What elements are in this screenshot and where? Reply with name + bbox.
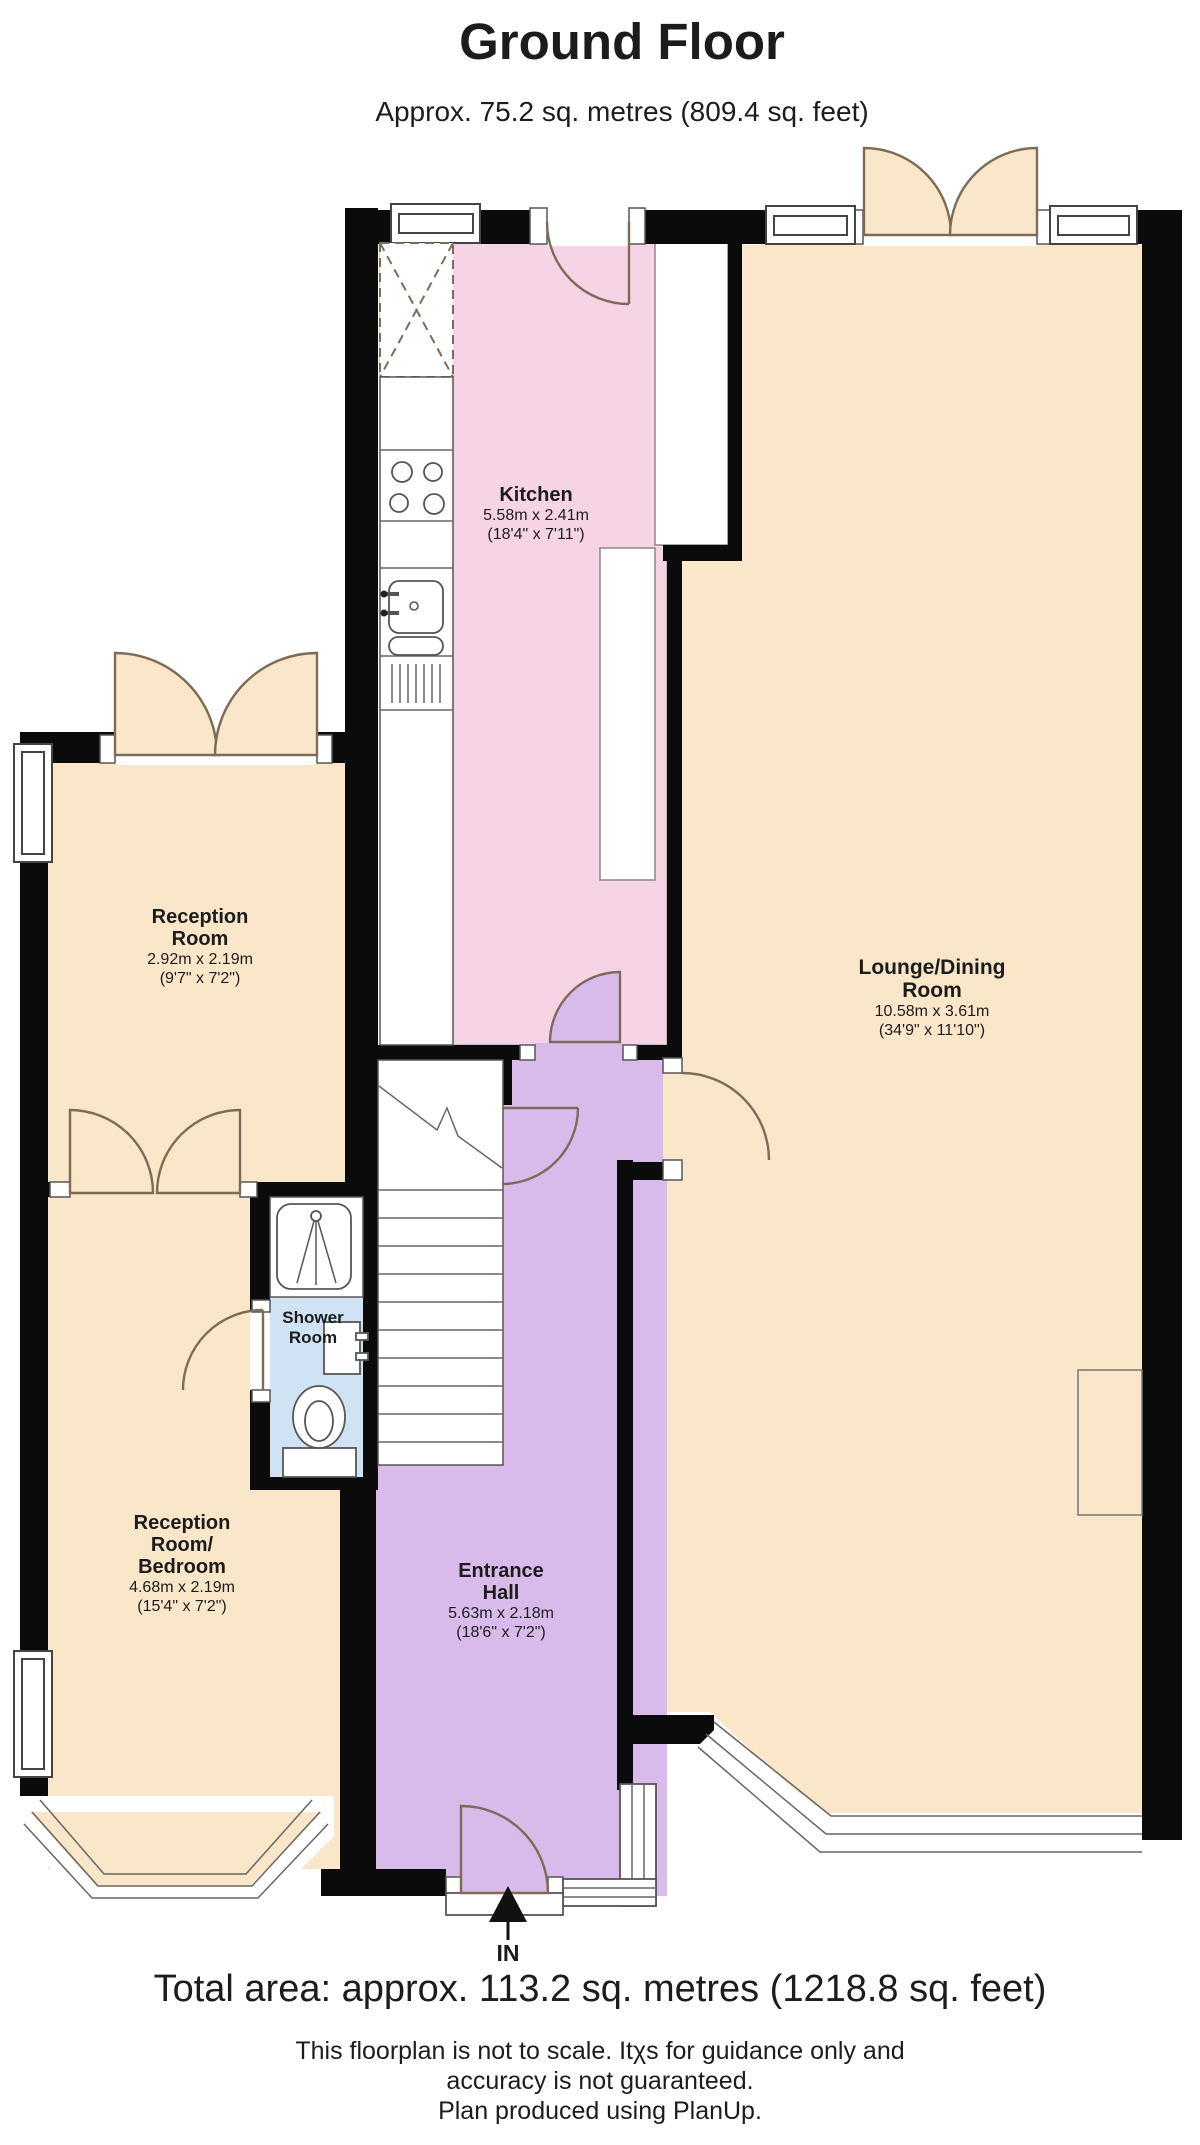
shower-room-name-line2: Room bbox=[282, 1328, 343, 1348]
wall-doubledoor-left bbox=[20, 1182, 50, 1197]
entrance-hall-name-line1: Entrance bbox=[448, 1560, 554, 1582]
entrance-hall-name-line2: Hall bbox=[448, 1582, 554, 1604]
shower-tray-icon bbox=[270, 1197, 363, 1297]
shower-room-label: Shower Room bbox=[282, 1308, 343, 1348]
chimney-breast-outline bbox=[1078, 1370, 1142, 1515]
entry-in-label: IN bbox=[497, 1940, 520, 1967]
opening-shower-door bbox=[250, 1312, 270, 1390]
reception-bedroom-name-line2: Room/ bbox=[129, 1534, 235, 1556]
kitchen-fixtures bbox=[380, 243, 453, 1045]
staircase bbox=[378, 1060, 503, 1465]
reception-name-line2: Room bbox=[147, 928, 253, 950]
wall-lounge-bay-left bbox=[633, 1715, 714, 1744]
lounge-name-line1: Lounge/Dining bbox=[859, 956, 1006, 979]
bedroom-bay-window bbox=[20, 1796, 334, 1908]
drainer bbox=[389, 637, 443, 655]
recess-a bbox=[655, 240, 728, 545]
wall-spine-upper bbox=[345, 208, 378, 1183]
entrance-hall-dims-metric: 5.63m x 2.18m bbox=[448, 1604, 554, 1623]
room-fills bbox=[48, 242, 1142, 1896]
shower-room-name-line1: Shower bbox=[282, 1308, 343, 1328]
kitchen-worktop bbox=[380, 377, 453, 1045]
disclaimer-line3: Plan produced using PlanUp. bbox=[0, 2096, 1200, 2126]
entrance-hall-label: Entrance Hall 5.63m x 2.18m (18'6" x 7'2… bbox=[448, 1560, 554, 1642]
reception-dims-imperial: (9'7" x 7'2") bbox=[147, 969, 253, 988]
reception-bedroom-label: Reception Room/ Bedroom 4.68m x 2.19m (1… bbox=[129, 1512, 235, 1616]
kitchen-dims-imperial: (18'4" x 7'11") bbox=[483, 525, 589, 544]
entrance-hall-dims-imperial: (18'6" x 7'2") bbox=[448, 1623, 554, 1642]
recess-b bbox=[600, 548, 655, 880]
lounge-dims-metric: 10.58m x 3.61m bbox=[859, 1002, 1006, 1021]
floorplan-page: { "header": { "title": "Ground Floor", "… bbox=[0, 0, 1200, 2145]
reception-name-line1: Reception bbox=[147, 906, 253, 928]
kitchen-label: Kitchen 5.58m x 2.41m (18'4" x 7'11") bbox=[483, 484, 589, 544]
lounge-top-left-window-icon bbox=[766, 206, 855, 244]
wall-lounge-west-top bbox=[728, 228, 742, 561]
reception-bedroom-name-line3: Bedroom bbox=[129, 1556, 235, 1578]
wall-hall-lounge-lower bbox=[617, 1160, 633, 1790]
reception-dims-metric: 2.92m x 2.19m bbox=[147, 950, 253, 969]
lounge-top-right-window-icon bbox=[1050, 206, 1137, 244]
reception-bedroom-name-line1: Reception bbox=[129, 1512, 235, 1534]
wall-lounge-west-mid bbox=[667, 561, 682, 1073]
reception-french-doors-icon bbox=[115, 653, 317, 755]
lounge-name-line2: Room bbox=[859, 979, 1006, 1002]
lounge-dims-imperial: (34'9" x 11'10") bbox=[859, 1021, 1006, 1040]
opening-hall-lounge bbox=[663, 1073, 682, 1160]
kitchen-dims-metric: 5.58m x 2.41m bbox=[483, 506, 589, 525]
wall-lounge-step bbox=[663, 545, 742, 561]
larder-hatched-box bbox=[380, 243, 453, 377]
disclaimer-line2: accuracy is not guaranteed. bbox=[0, 2066, 1200, 2096]
bedroom-west-window-icon bbox=[14, 1651, 52, 1777]
reception-label: Reception Room 2.92m x 2.19m (9'7" x 7'2… bbox=[147, 906, 253, 988]
reception-bedroom-dims-imperial: (15'4" x 7'2") bbox=[129, 1597, 235, 1616]
disclaimer-line1: This floorplan is not to scale. Itχs for… bbox=[0, 2036, 1200, 2066]
floorplan-svg bbox=[0, 0, 1200, 2145]
opening-kitchen-back-door bbox=[547, 206, 629, 246]
kitchen-top-window-icon bbox=[391, 204, 480, 243]
sink-icon bbox=[381, 581, 444, 655]
lounge-label: Lounge/Dining Room 10.58m x 3.61m (34'9"… bbox=[859, 956, 1006, 1040]
disclaimer-text: This floorplan is not to scale. Itχs for… bbox=[0, 2036, 1200, 2126]
bedroom-floor-upper bbox=[48, 1197, 250, 1490]
lounge-french-doors-icon bbox=[864, 148, 1037, 235]
wall-shower-top bbox=[257, 1182, 378, 1197]
wall-right bbox=[1142, 210, 1182, 1840]
reception-west-window-icon bbox=[14, 744, 52, 862]
wall-bay-corner bbox=[321, 1869, 348, 1896]
opening-kitchen-hall bbox=[535, 1043, 623, 1062]
reception-bedroom-dims-metric: 4.68m x 2.19m bbox=[129, 1578, 235, 1597]
wall-shower-bottom bbox=[250, 1477, 378, 1490]
wall-hall-left bbox=[340, 1490, 376, 1896]
total-area-text: Total area: approx. 113.2 sq. metres (12… bbox=[0, 1968, 1200, 2011]
kitchen-name: Kitchen bbox=[483, 484, 589, 506]
